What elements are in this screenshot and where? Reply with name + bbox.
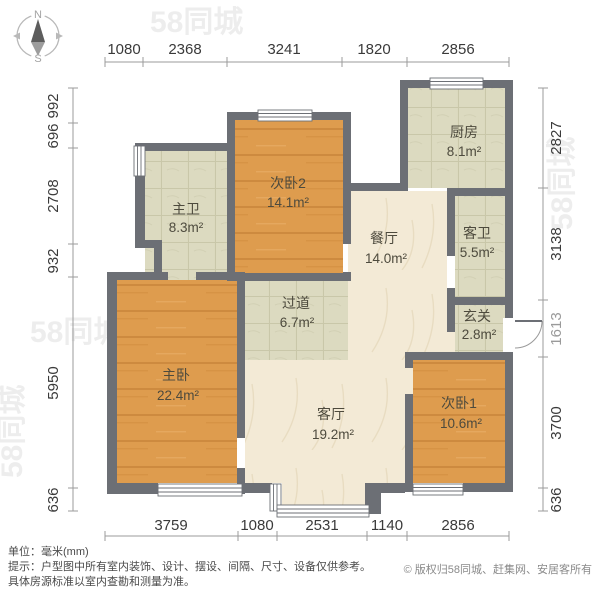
dim-top-1: 1080	[107, 41, 140, 58]
footer-tip-line2: 具体房源标准以室内查勘和测量为准。	[8, 576, 195, 589]
wall-segment	[107, 272, 117, 494]
room-label-master-bath: 主卫	[172, 201, 200, 217]
wall-segment	[237, 280, 245, 438]
dim-right-2: 3138	[548, 227, 565, 260]
wall-segment	[455, 297, 505, 305]
entry-door-swing-arc	[515, 321, 542, 348]
dim-right-1: 2827	[548, 121, 565, 154]
compass-needle-north-icon	[31, 19, 45, 42]
room-label-living: 客厅	[317, 406, 345, 422]
compass: N S	[13, 7, 63, 65]
wall-segment	[235, 273, 343, 281]
wall-segment	[505, 350, 513, 491]
room-area-bedroom2: 14.1m²	[267, 195, 310, 210]
dim-bottom-3: 2531	[305, 517, 338, 534]
entry-door-icon	[503, 318, 542, 352]
watermark-text: 58同城	[0, 385, 29, 478]
dim-left-6: 636	[45, 487, 62, 512]
wall-segment	[405, 360, 413, 368]
room-label-master-bedroom: 主卧	[162, 367, 190, 383]
dim-left-5: 5950	[45, 366, 62, 399]
window-bedroom2-icon	[258, 110, 312, 121]
room-area-master-bedroom: 22.4m²	[157, 388, 200, 403]
entry-door-opening	[503, 318, 515, 352]
footer-tip-line1: 提示：户型图中所有室内装饰、设计、摆设、间隔、尺寸、设备仅供参考。	[8, 561, 371, 574]
window-master-bedroom-icon	[158, 484, 242, 496]
window-kitchen-icon	[430, 78, 483, 89]
wall-segment	[447, 196, 455, 256]
dim-left-4: 932	[45, 248, 62, 273]
wall-segment	[400, 88, 408, 191]
wall-segment	[463, 483, 513, 492]
window-bay-bottom-icon	[277, 505, 369, 517]
window-master-bath-icon	[134, 146, 145, 176]
window-bedroom1-icon	[413, 484, 463, 495]
wall-segment	[107, 483, 158, 494]
dim-top-2: 2368	[168, 41, 201, 58]
room-floor-entry-opening	[447, 332, 455, 352]
room-area-master-bath: 8.3m²	[169, 220, 204, 235]
dim-top-5: 2856	[441, 41, 474, 58]
wall-segment	[196, 272, 245, 280]
wall-segment	[505, 80, 513, 318]
dim-bottom-1: 3759	[154, 517, 187, 534]
wall-segment	[447, 188, 513, 196]
wall-segment	[343, 272, 351, 281]
room-label-hallway: 过道	[282, 295, 310, 311]
room-label-bedroom2: 次卧2	[270, 175, 306, 191]
room-floor-dining	[348, 191, 447, 360]
dim-top-4: 1820	[357, 41, 390, 58]
room-label-bedroom1: 次卧1	[441, 395, 477, 411]
room-area-entry: 2.8m²	[462, 327, 497, 342]
room-area-living: 19.2m²	[312, 427, 355, 442]
footer-unit-label: 单位：毫米(mm)	[8, 546, 89, 559]
wall-segment	[343, 112, 351, 244]
wall-segment	[405, 394, 413, 483]
floorplan-page: N S 58同城 58同城 58同城 58同城	[0, 0, 600, 600]
dim-right-3: 1613	[548, 312, 565, 345]
footer-copyright: © 版权归58同城、赶集网、安居客所有	[404, 561, 592, 577]
room-label-kitchen: 厨房	[450, 124, 478, 140]
compass-south-label: S	[34, 53, 41, 65]
floorplan-drawing: N S 58同城 58同城 58同城 58同城	[0, 0, 600, 600]
dim-right-5: 636	[548, 487, 565, 512]
room-area-bedroom1: 10.6m²	[440, 416, 483, 431]
wall-segment	[405, 352, 513, 360]
room-label-guest-bath: 客卫	[463, 225, 491, 241]
dim-bottom-5: 2856	[441, 517, 474, 534]
wall-segment	[405, 483, 413, 492]
wall-segment	[137, 240, 162, 248]
wall-segment	[447, 288, 455, 332]
dim-left-3: 2708	[45, 179, 62, 212]
dim-bottom-4: 1140	[371, 517, 403, 534]
dim-bottom-2: 1080	[240, 517, 273, 534]
watermark-text: 58同城	[150, 6, 243, 39]
compass-north-label: N	[34, 9, 42, 21]
dim-right-4: 3700	[548, 406, 565, 439]
dim-left-2: 696	[45, 123, 62, 148]
room-area-hallway: 6.7m²	[280, 315, 315, 330]
dim-left-1: 992	[45, 93, 62, 118]
room-area-dining: 14.0m²	[365, 251, 408, 266]
room-area-kitchen: 8.1m²	[447, 144, 482, 159]
room-label-entry: 玄关	[463, 308, 491, 324]
wall-segment	[381, 483, 405, 493]
dim-top-3: 3241	[267, 41, 300, 58]
room-label-dining: 餐厅	[370, 230, 398, 246]
wall-segment	[343, 183, 408, 191]
wall-segment	[137, 143, 235, 151]
wall-segment	[245, 483, 272, 493]
room-area-guest-bath: 5.5m²	[460, 245, 495, 260]
